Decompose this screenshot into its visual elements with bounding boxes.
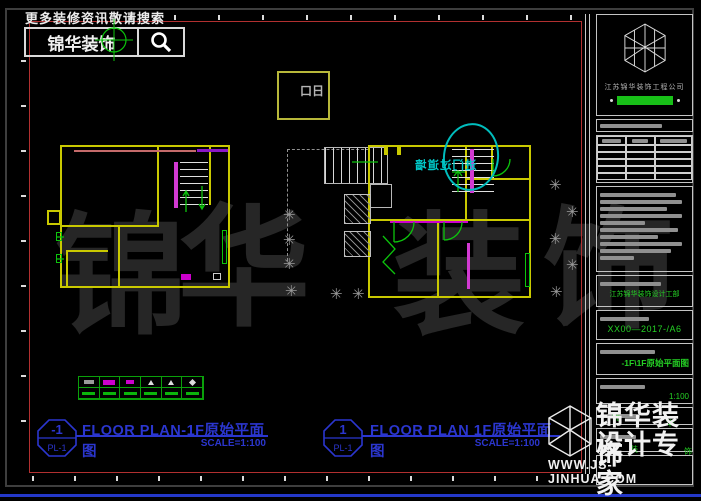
text-smudge — [600, 350, 655, 354]
titleblock-drawing-title: -1F\1F原始平面图 — [596, 343, 693, 375]
text-smudge — [600, 282, 661, 286]
legend-cell — [120, 388, 141, 399]
legend-cell — [100, 377, 121, 388]
text-smudge — [600, 221, 645, 225]
watermark-url: WWW.JS-JINHUA.COM — [548, 458, 698, 486]
titleblock-notes — [596, 186, 693, 272]
label-ref: PL-1 — [47, 443, 66, 453]
text-smudge — [600, 207, 667, 211]
magnifier-icon — [149, 30, 173, 54]
text-smudge — [600, 193, 676, 197]
label-number: 1 — [339, 422, 346, 437]
label-bubble: -1 PL-1 — [36, 418, 78, 458]
text-smudge — [602, 139, 621, 143]
titleblock-project-no: XX00—2017-/A6 — [596, 310, 693, 340]
legend-cell — [100, 388, 121, 399]
dot — [610, 99, 613, 102]
text-smudge — [600, 242, 682, 246]
tree-symbol: ✳ — [549, 178, 562, 193]
text-smudge — [600, 200, 682, 204]
text-smudge — [600, 228, 678, 232]
tree-symbol: ✳ — [285, 284, 298, 299]
text-smudge — [600, 249, 671, 253]
project-number: XX00—2017-/A6 — [600, 324, 689, 334]
tree-symbol: ✳ — [566, 205, 579, 220]
label-scale: SCALE=1:100 — [475, 438, 540, 449]
legend-cell — [141, 388, 162, 399]
legend-cell — [162, 388, 183, 399]
legend-cell — [79, 388, 100, 399]
legend-table — [78, 376, 204, 400]
green-highlight — [617, 96, 673, 105]
company-name: 江苏锦华装饰工程公司 — [600, 82, 689, 92]
dept-name: 江苏锦华装饰设计工部 — [600, 289, 689, 299]
dot — [677, 99, 680, 102]
legend-cell — [182, 388, 203, 399]
site-watermark: 锦 华 装 饰 锦华装饰 设计专家 WWW.JS-JINHUA.COM — [546, 396, 698, 482]
titleblock-strip — [596, 119, 693, 132]
titleblock-logo-section: 江苏锦华装饰工程公司 — [596, 14, 693, 116]
legend-cell — [182, 377, 203, 388]
label-number: -1 — [51, 422, 63, 437]
legend-cell — [141, 377, 162, 388]
titleblock-dept: 江苏锦华装饰设计工部 — [596, 275, 693, 307]
tree-symbol: ✳ — [330, 287, 343, 302]
entry-annotation: 进门过道墙 — [414, 157, 477, 173]
cad-canvas: 锦 华 装 饰 更多装修资讯敬请搜索 锦华装饰 口日 — [0, 0, 701, 501]
text-smudge — [632, 139, 648, 143]
tree-symbol: ✳ — [549, 232, 562, 247]
crosshair-target-icon — [92, 18, 136, 62]
text-smudge — [600, 124, 662, 128]
tree-symbol: ✳ — [283, 233, 296, 248]
text-smudge — [600, 317, 649, 321]
label-bubble: 1 PL-1 — [322, 418, 364, 458]
plan-label-left: -1 PL-1 FLOOR PLAN-1F原始平面图 SCALE=1:100 — [36, 418, 268, 454]
text-smudge — [600, 385, 645, 389]
text-smudge — [600, 256, 634, 260]
text-smudge — [600, 214, 682, 218]
text-smudge — [600, 235, 658, 239]
tree-symbol: ✳ — [550, 285, 563, 300]
search-button[interactable] — [137, 29, 183, 55]
watermark-cube-icon — [546, 402, 594, 460]
tree-symbol: ✳ — [566, 258, 579, 273]
tree-symbol: ✳ — [283, 257, 296, 272]
legend-cell — [120, 377, 141, 388]
legend-cell — [162, 377, 183, 388]
plan-label-right: 1 PL-1 FLOOR PLAN 1F原始平面图 SCALE=1:100 — [322, 418, 560, 454]
tree-symbol: ✳ — [352, 287, 365, 302]
label-ref: PL-1 — [333, 443, 352, 453]
drawing-title: -1F\1F原始平面图 — [600, 357, 689, 369]
company-cube-logo — [622, 22, 668, 74]
text-smudge — [660, 139, 687, 143]
label-scale: SCALE=1:100 — [201, 438, 266, 449]
tree-symbol: ✳ — [283, 208, 296, 223]
titleblock-table — [596, 135, 693, 183]
legend-cell — [79, 377, 100, 388]
